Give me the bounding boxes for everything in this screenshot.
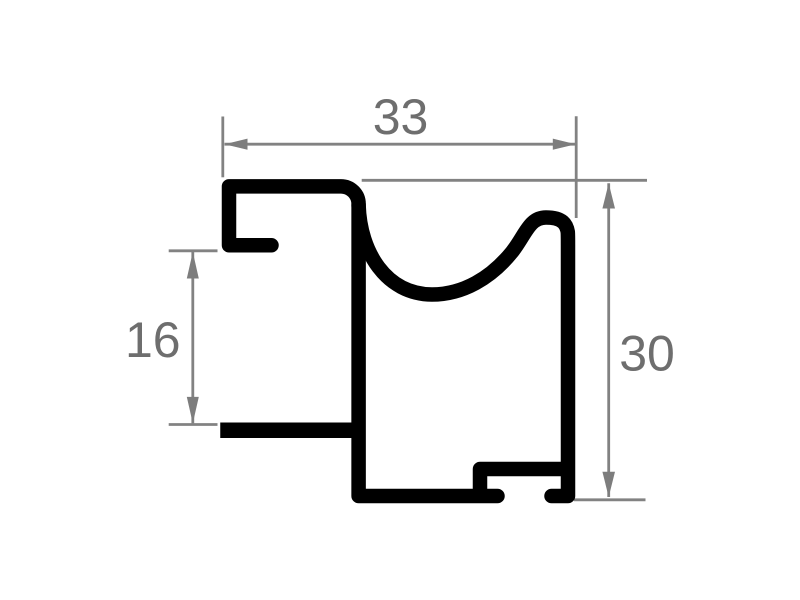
svg-text:30: 30 [619,325,675,381]
svg-text:16: 16 [125,312,181,368]
svg-text:33: 33 [373,89,429,145]
